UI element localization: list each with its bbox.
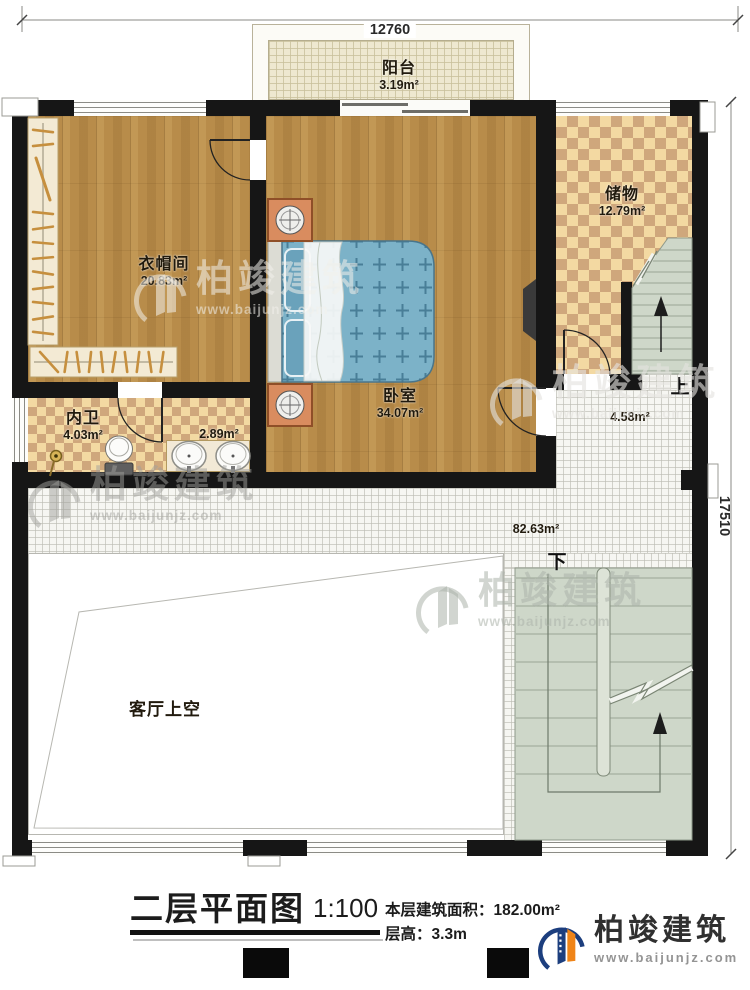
drawing-scale: 1:100 xyxy=(313,893,378,924)
dimension-right: 17510 xyxy=(716,488,732,544)
room-label-cloakroom: 衣帽间 20.83m² xyxy=(138,256,189,289)
company-logo: 柏竣建筑 www.baijunjz.com xyxy=(538,914,738,974)
balcony-name: 阳台 xyxy=(379,60,419,78)
floor-height-row: 层高：3.3m xyxy=(385,923,560,947)
bathroom-area: 4.03m² xyxy=(63,428,103,442)
wall xyxy=(536,436,556,472)
cloakroom-floor xyxy=(28,116,250,382)
window xyxy=(32,840,243,856)
wall xyxy=(12,472,556,488)
room-label-living-void: 客厅上空 xyxy=(129,700,201,720)
room-label-bedroom: 卧室 34.07m² xyxy=(377,388,424,421)
room-label-stair-hall: 4.58m² xyxy=(610,410,650,424)
title-underline-thin xyxy=(133,939,383,941)
room-label-storage: 储物 12.79m² xyxy=(599,186,646,219)
watermark-logo-icon xyxy=(416,572,470,638)
bedroom-name: 卧室 xyxy=(377,388,424,406)
floor-area-label: 本层建筑面积： xyxy=(385,902,494,919)
title-underline xyxy=(130,930,380,935)
bedroom-area: 34.07m² xyxy=(377,406,424,420)
wall xyxy=(250,180,266,472)
room-label-vanity: 2.89m² xyxy=(199,427,239,441)
bathroom-name: 内卫 xyxy=(63,410,103,428)
storage-area: 12.79m² xyxy=(599,204,646,218)
window xyxy=(556,100,670,116)
window xyxy=(74,100,206,116)
wall xyxy=(556,374,564,390)
floor-area-row: 本层建筑面积：182.00m² xyxy=(385,899,560,923)
void-outline xyxy=(29,554,504,835)
window xyxy=(12,398,28,462)
wall xyxy=(692,100,708,856)
stairs-down-label: 下 xyxy=(547,547,566,574)
balcony-sliding-door xyxy=(340,100,470,116)
hall-area: 82.63m² xyxy=(513,522,560,536)
company-website: www.baijunjz.com xyxy=(594,950,738,965)
living-void-name: 客厅上空 xyxy=(129,700,201,720)
vanity-counter xyxy=(166,440,250,472)
window xyxy=(307,840,467,856)
wall xyxy=(162,382,266,398)
room-label-hall: 82.63m² xyxy=(513,522,560,536)
cloakroom-name: 衣帽间 xyxy=(138,256,189,274)
balcony-area: 3.19m² xyxy=(379,78,419,92)
floor-height-label: 层高： xyxy=(385,926,432,943)
drawing-info: 本层建筑面积：182.00m² 层高：3.3m xyxy=(385,899,560,947)
window xyxy=(542,840,666,856)
room-label-balcony: 阳台 3.19m² xyxy=(379,60,419,93)
dimension-top: 12760 xyxy=(364,22,416,38)
wall xyxy=(621,282,632,374)
wall xyxy=(250,116,266,140)
wall xyxy=(536,116,556,388)
legend-square xyxy=(487,948,529,978)
legend-square xyxy=(243,948,289,978)
floor-height-value: 3.3m xyxy=(432,926,467,943)
floor-plan-canvas: 阳台 3.19m² 储物 12.79m² 衣帽间 20.83m² 卧室 34.0… xyxy=(0,0,750,990)
stairs-up-label: 上 xyxy=(670,372,689,399)
company-logo-icon xyxy=(538,914,586,974)
stairs-down xyxy=(515,568,692,840)
vanity-area: 2.89m² xyxy=(199,427,239,441)
cloakroom-area: 20.83m² xyxy=(138,274,189,288)
wall-pier xyxy=(681,470,692,490)
wall xyxy=(12,382,118,398)
company-name: 柏竣建筑 xyxy=(594,914,738,947)
wall xyxy=(610,374,642,390)
storage-name: 储物 xyxy=(599,186,646,204)
watermark: 柏竣建筑 www.baijunjz.com xyxy=(416,572,646,638)
page-title: 二层平面图 xyxy=(130,882,305,930)
hall-floor xyxy=(504,568,515,840)
room-label-bathroom: 内卫 4.03m² xyxy=(63,410,103,443)
stair-hall-area: 4.58m² xyxy=(610,410,650,424)
hall-floor xyxy=(504,553,692,568)
